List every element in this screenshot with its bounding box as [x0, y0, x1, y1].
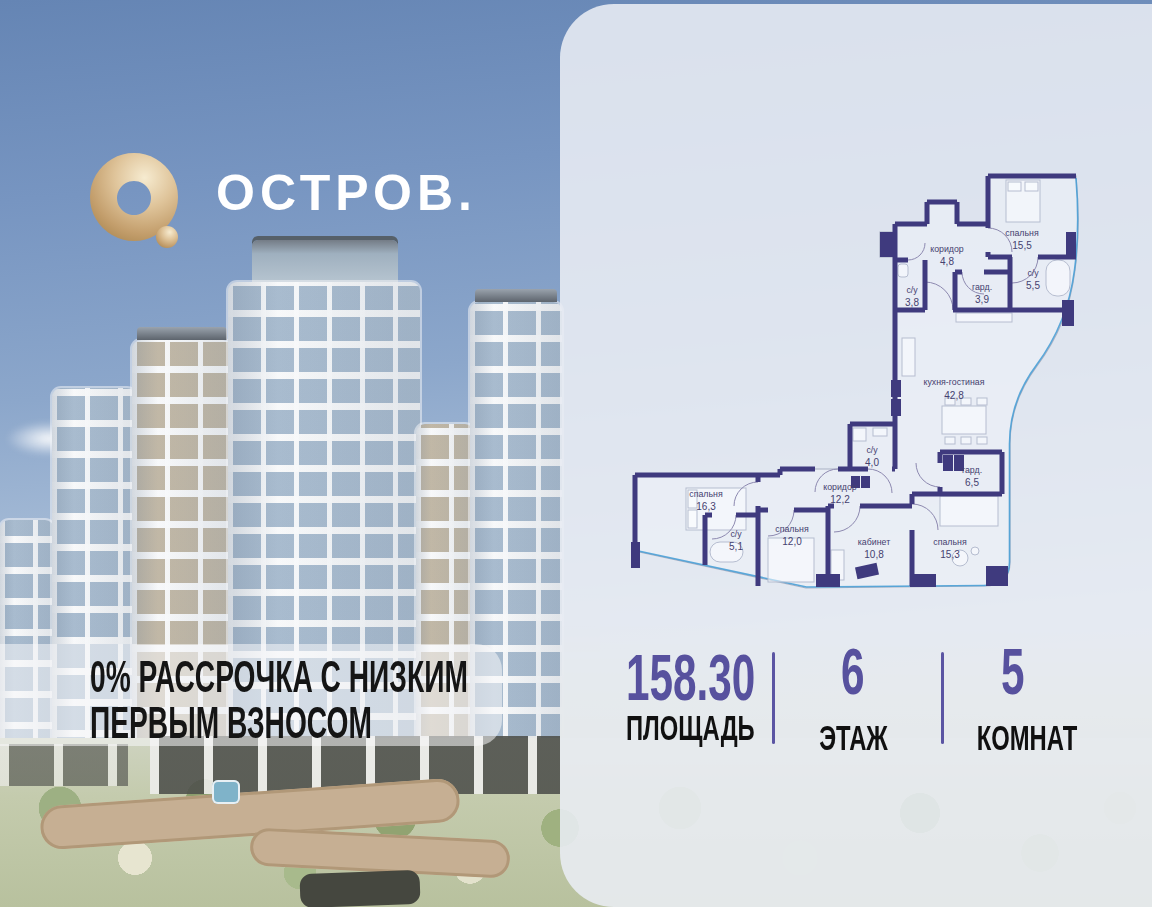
stat-rooms-label: КОМНАТ	[977, 720, 1078, 755]
floor-plan: спальня 15,5 коридор 4,8 с/у 3,8 гард. 3…	[610, 160, 1120, 640]
room-name: спальня	[1005, 228, 1039, 238]
park-canopy	[299, 870, 420, 907]
room-name: коридор	[930, 244, 964, 254]
room-name: гард.	[972, 282, 992, 292]
room-area: 4,8	[940, 256, 954, 267]
room-name: с/у	[906, 285, 918, 295]
room-name: гард.	[962, 465, 982, 475]
room-area: 15,3	[940, 549, 960, 560]
room-area: 5,5	[1026, 280, 1040, 291]
stat-rooms: 5 КОМНАТ	[953, 640, 1073, 756]
stat-divider	[772, 652, 775, 744]
room-name: спальня	[775, 524, 809, 534]
promo-banner: 0% РАССРОЧКА С НИЗКИМ ПЕРВЫМ ВЗНОСОМ	[0, 644, 502, 746]
stat-rooms-value: 5	[1001, 640, 1024, 704]
stat-floor-value: 6	[841, 640, 864, 704]
room-name: с/у	[866, 445, 878, 455]
room-area: 15,5	[1012, 240, 1032, 251]
room-area: 42,8	[944, 390, 964, 401]
room-area: 3,8	[905, 297, 919, 308]
info-panel: спальня 15,5 коридор 4,8 с/у 3,8 гард. 3…	[560, 4, 1152, 907]
stat-floor: 6 ЭТАЖ	[793, 640, 913, 756]
room-area: 16,3	[696, 501, 716, 512]
promo-line-2: ПЕРВЫМ ВЗНОСОМ	[90, 700, 468, 746]
stats-row: 158.30 ПЛОЩАДЬ 6 ЭТАЖ 5 КОМНАТ	[560, 640, 1152, 756]
stat-divider	[941, 652, 944, 744]
flyer: ОСТРОВ. 0% РАССРОЧКА С НИЗКИМ ПЕРВЫМ ВЗН…	[0, 0, 1152, 907]
logo-ring-icon	[88, 152, 188, 256]
room-name: с/у	[730, 529, 742, 539]
room-name: спальня	[933, 537, 967, 547]
room-area: 5,1	[729, 541, 743, 552]
room-area: 3,9	[975, 294, 989, 305]
room-area: 4,0	[865, 457, 879, 468]
promo-line-1: 0% РАССРОЧКА С НИЗКИМ	[90, 654, 468, 700]
building-arcade	[0, 744, 128, 786]
brand-logo: ОСТРОВ.	[88, 152, 477, 256]
room-name: с/у	[1027, 268, 1039, 278]
room-area: 12,2	[830, 494, 850, 505]
room-name: кухня-гостиная	[923, 377, 984, 387]
room-area: 10,8	[864, 549, 884, 560]
playground-slide	[212, 780, 240, 804]
brand-name: ОСТРОВ.	[216, 168, 477, 218]
promo-text: 0% РАССРОЧКА С НИЗКИМ ПЕРВЫМ ВЗНОСОМ	[90, 654, 468, 746]
room-name: кабинет	[858, 537, 890, 547]
room-area: 12,0	[782, 536, 802, 547]
stat-area-label: ПЛОЩАДЬ	[626, 710, 755, 745]
stat-area-value: 158.30	[626, 646, 755, 710]
room-name: спальня	[689, 489, 723, 499]
room-area: 6,5	[965, 477, 979, 488]
stat-floor-label: ЭТАЖ	[819, 720, 888, 755]
room-name: коридор	[823, 482, 857, 492]
